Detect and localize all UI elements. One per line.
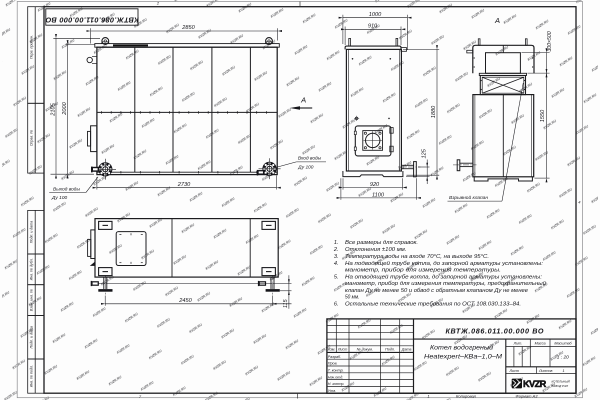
svg-text:4.: 4. bbox=[334, 261, 339, 267]
svg-text:манометр, прибор для измерения: манометр, прибор для измерения температу… bbox=[345, 268, 501, 274]
svg-text:Нач.отд.: Нач.отд. bbox=[328, 375, 344, 379]
svg-text:На отводящей трубе котла, до з: На отводящей трубе котла, до запорной ар… bbox=[345, 273, 542, 280]
svg-text:Пров.: Пров. bbox=[328, 362, 338, 366]
svg-text:1.: 1. bbox=[334, 240, 339, 246]
svg-text:Вход воды: Вход воды bbox=[298, 156, 322, 162]
svg-text:2000: 2000 bbox=[62, 101, 68, 115]
svg-text:Лист: Лист bbox=[509, 369, 520, 373]
svg-text:Разраб.: Разраб. bbox=[328, 355, 341, 359]
svg-text:1: 1 bbox=[427, 393, 429, 398]
svg-text:910: 910 bbox=[368, 24, 378, 30]
svg-text:КВТЖ.086.011.00.000 ВО: КВТЖ.086.011.00.000 ВО bbox=[45, 16, 138, 25]
svg-text:1880: 1880 bbox=[431, 105, 437, 118]
svg-text:Лит.: Лит. bbox=[513, 342, 523, 346]
svg-text:Утв.: Утв. bbox=[328, 389, 336, 393]
svg-text:2.: 2. bbox=[333, 247, 339, 253]
svg-text:3.: 3. bbox=[334, 254, 339, 260]
svg-text:Перв. примен.: Перв. примен. bbox=[30, 35, 34, 59]
svg-text:Отклонения ±100 мм.: Отклонения ±100 мм. bbox=[345, 247, 407, 253]
svg-text:125: 125 bbox=[421, 148, 427, 158]
svg-text:А: А bbox=[494, 16, 500, 25]
svg-text:1100: 1100 bbox=[372, 193, 385, 199]
svg-text:А: А bbox=[300, 96, 306, 105]
svg-text:№ докум.: № докум. bbox=[357, 348, 373, 352]
svg-text:Взрывной клапан: Взрывной клапан bbox=[449, 194, 488, 201]
svg-text:50 мм.: 50 мм. bbox=[345, 295, 360, 301]
svg-text:Инв. № дубл.: Инв. № дубл. bbox=[30, 258, 34, 280]
svg-text:300×500: 300×500 bbox=[547, 31, 553, 51]
svg-text:Подп. и дата: Подп. и дата bbox=[30, 326, 34, 349]
svg-text:Изм.: Изм. bbox=[328, 348, 336, 352]
svg-text:Т. контр.: Т. контр. bbox=[328, 369, 344, 373]
svg-text:КОТЕЛЬНЫЙ: КОТЕЛЬНЫЙ bbox=[552, 380, 571, 384]
svg-text:1000: 1000 bbox=[369, 12, 382, 18]
svg-text:Масса: Масса bbox=[535, 342, 546, 346]
svg-text:Взам. инв. №: Взам. инв. № bbox=[30, 289, 34, 311]
svg-text:Котел водогреный: Котел водогреный bbox=[430, 344, 493, 352]
svg-text:КВТЖ.086.011.00.000 ВО: КВТЖ.086.011.00.000 ВО bbox=[445, 326, 544, 335]
svg-text:Ду 100: Ду 100 bbox=[297, 164, 313, 170]
svg-text:2850: 2850 bbox=[181, 25, 195, 31]
svg-text:1 : 20: 1 : 20 bbox=[557, 355, 569, 361]
svg-text:манометр, прибор для измерения: манометр, прибор для измерения температу… bbox=[345, 280, 546, 287]
svg-text:Масштаб: Масштаб bbox=[554, 342, 572, 346]
svg-text:5.: 5. bbox=[334, 274, 339, 280]
svg-text:Остальные технические требован: Остальные технические требования по ОСТ … bbox=[345, 302, 521, 308]
svg-text:Справ. №: Справ. № bbox=[30, 130, 34, 146]
svg-text:Heatexpert–КВа–1,0–М: Heatexpert–КВа–1,0–М bbox=[424, 354, 503, 361]
svg-text:Инв. № подл.: Инв. № подл. bbox=[30, 365, 34, 387]
svg-text:Формат А3: Формат А3 bbox=[516, 393, 539, 398]
svg-text:6.: 6. bbox=[334, 302, 339, 308]
svg-text:Ду 100: Ду 100 bbox=[51, 195, 67, 201]
svg-text:Н. контр.: Н. контр. bbox=[328, 382, 345, 386]
svg-text:ЗАВОД РЭП: ЗАВОД РЭП bbox=[552, 384, 569, 388]
svg-text:Все размеры для справок.: Все размеры для справок. bbox=[345, 240, 418, 246]
svg-text:1: 1 bbox=[563, 369, 565, 373]
svg-text:Подп. и дата: Подп. и дата bbox=[30, 221, 34, 244]
svg-text:920: 920 bbox=[370, 182, 380, 188]
svg-text:Температура воды на входе 70°С: Температура воды на входе 70°С, на выход… bbox=[345, 254, 489, 260]
svg-text:2730: 2730 bbox=[177, 182, 191, 188]
svg-text:Листов: Листов bbox=[538, 369, 553, 373]
svg-text:Копировал: Копировал bbox=[456, 393, 477, 398]
svg-text:2450: 2450 bbox=[178, 298, 192, 304]
svg-text:Дата: Дата bbox=[401, 348, 412, 352]
svg-text:2105: 2105 bbox=[50, 102, 56, 116]
svg-text:Выход воды: Выход воды bbox=[53, 187, 80, 193]
svg-text:KVZR: KVZR bbox=[523, 379, 547, 389]
svg-text:клапан Ду не менее 50 и обвод: клапан Ду не менее 50 и обвод с обратным… bbox=[345, 288, 528, 294]
svg-text:На подводящей трубе котла, до: На подводящей трубе котла, до запорной а… bbox=[345, 260, 543, 267]
svg-text:Лист: Лист bbox=[337, 348, 348, 352]
svg-text:115: 115 bbox=[283, 298, 289, 308]
svg-text:1550: 1550 bbox=[540, 109, 546, 122]
svg-text:Подп.: Подп. bbox=[385, 348, 395, 352]
